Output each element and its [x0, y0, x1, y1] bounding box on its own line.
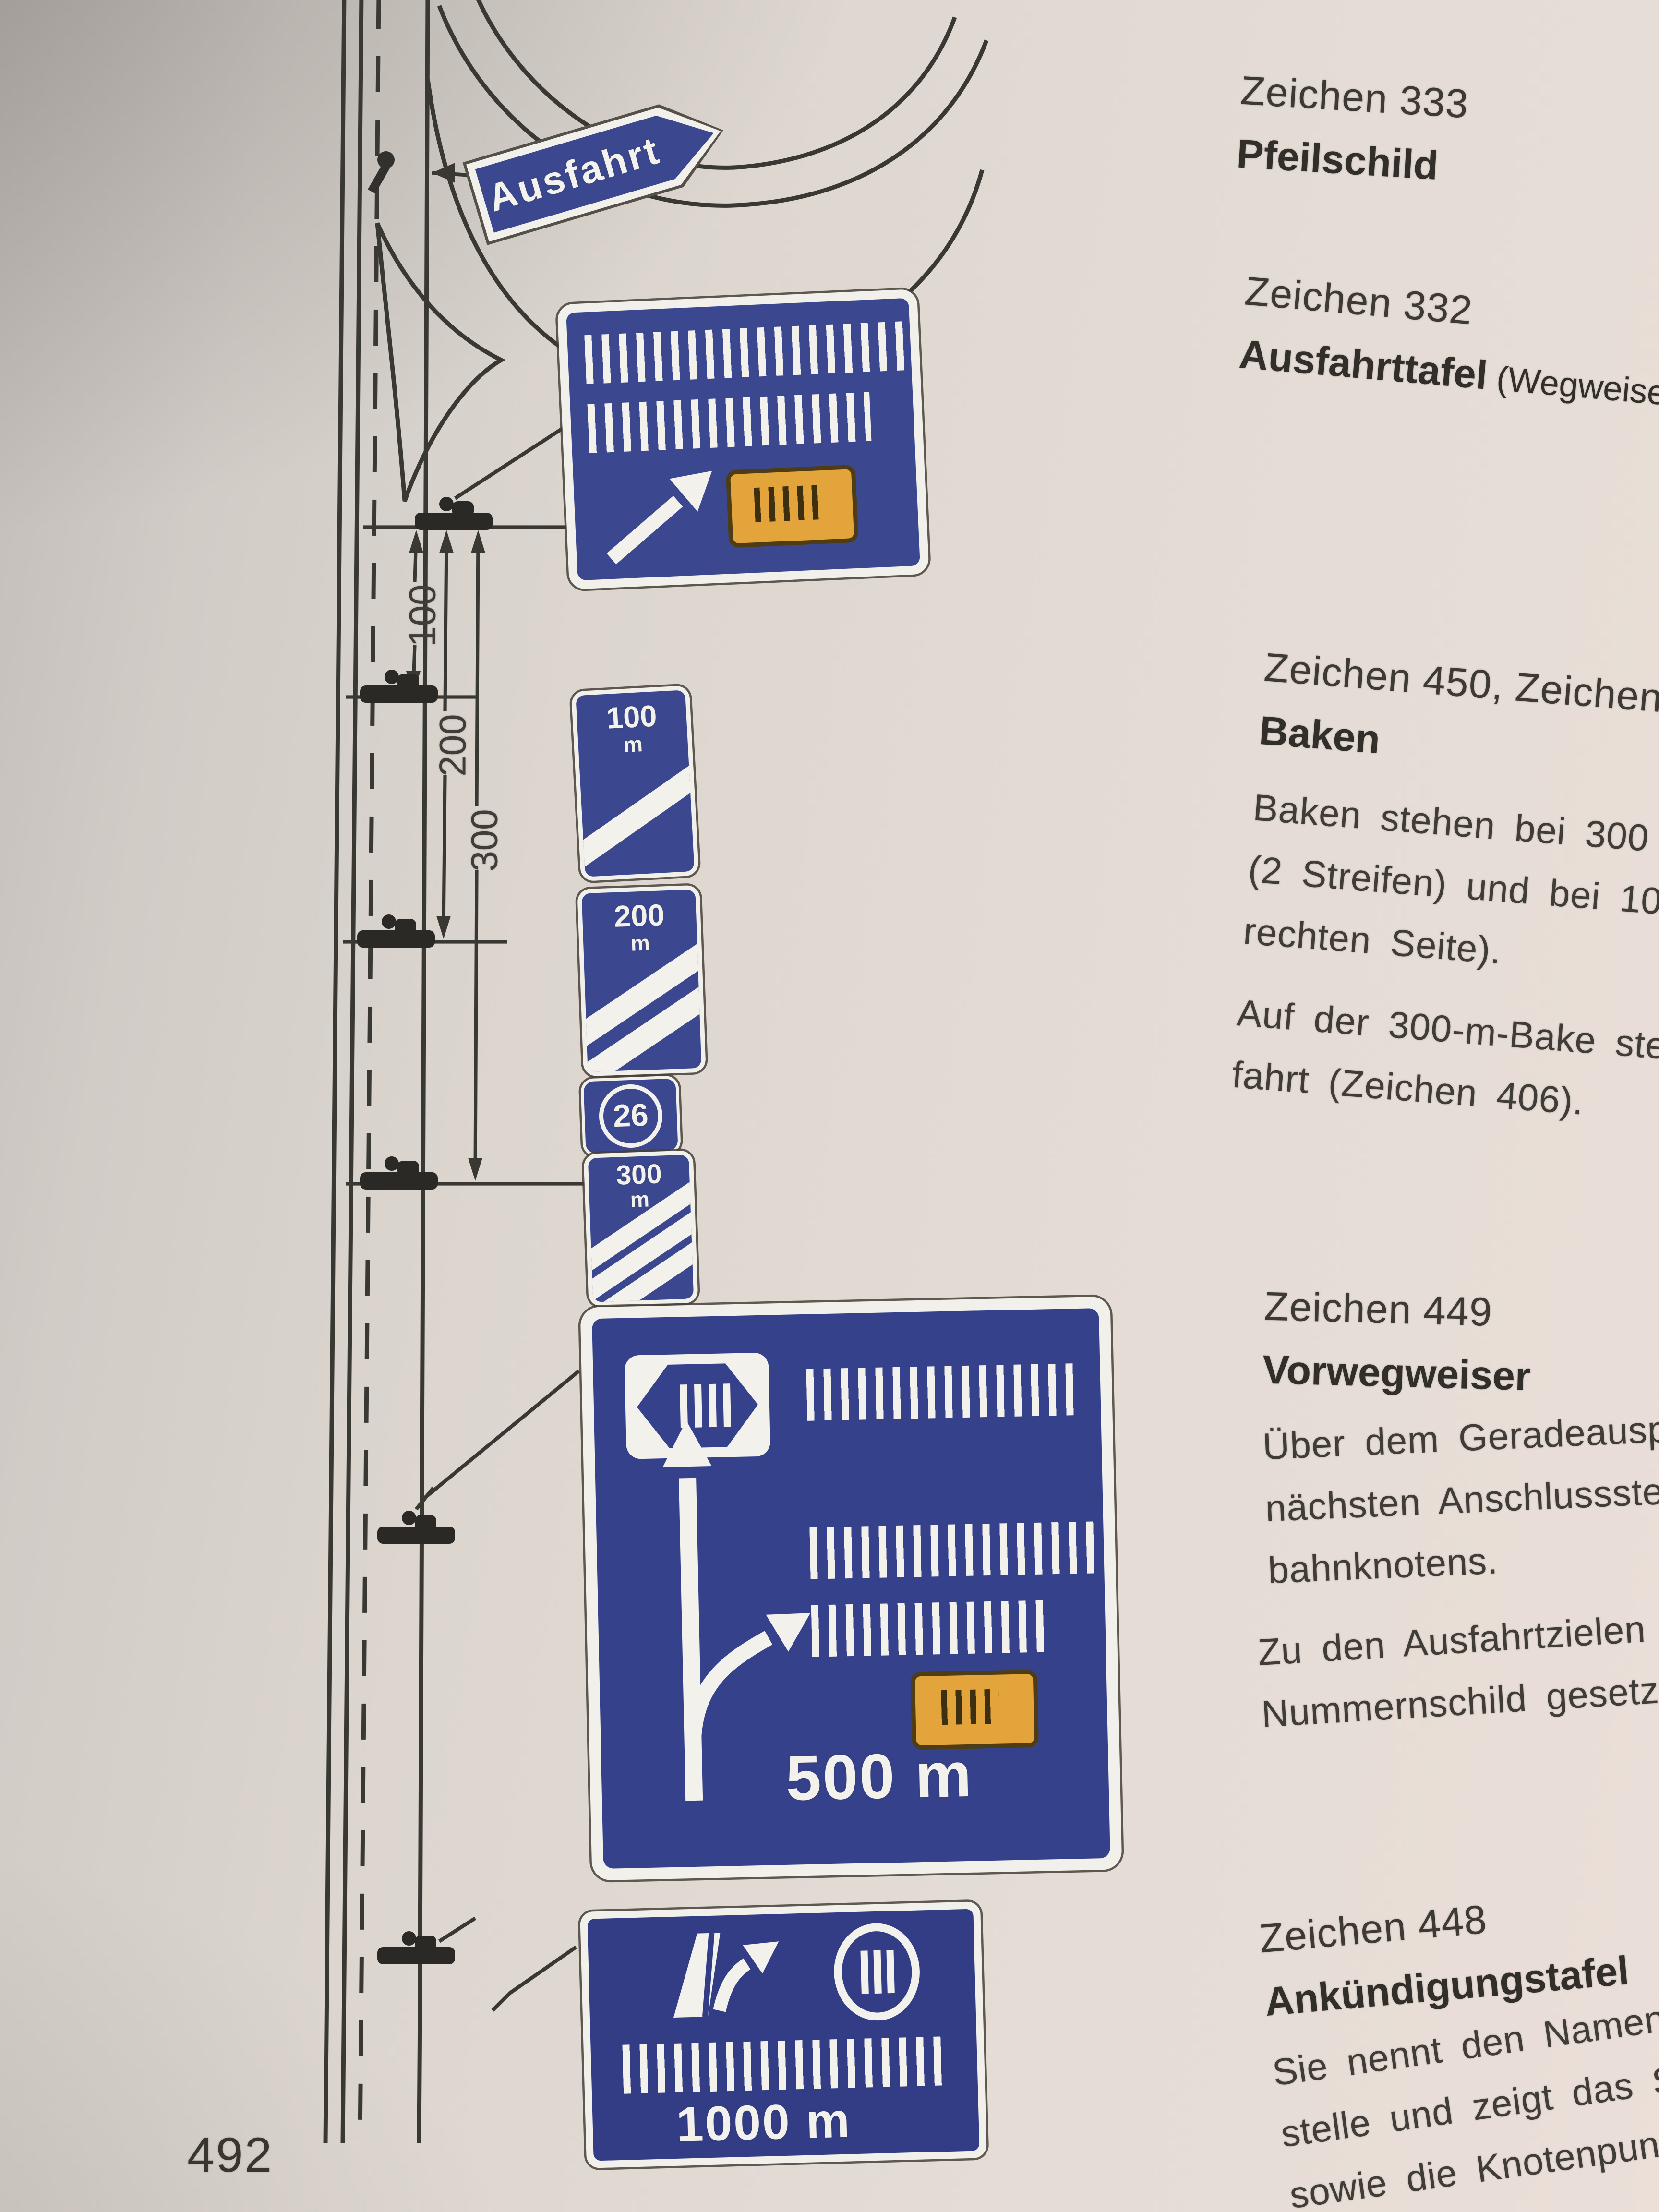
straight-arrow-stem — [687, 1478, 694, 1801]
road-right-edge — [419, 0, 428, 2143]
orange-badge-ticks — [754, 485, 824, 522]
bake-300m-face: 300m — [588, 1154, 694, 1302]
bake-stripe — [576, 757, 694, 877]
text-placeholder-ticks-row — [809, 1521, 1095, 1579]
bake-200m-label: 200m — [582, 890, 698, 958]
text-placeholder-ticks-row — [588, 392, 872, 453]
text-placeholder-ticks-row — [806, 1363, 1075, 1421]
book-page-photo: 100 200 300 Ausfahrt 100m 200m — [0, 0, 1659, 2212]
bake-100m-label: 100m — [576, 690, 688, 760]
zeichen-number: Zeichen 449 — [1263, 1284, 1659, 1343]
paragraph: Über dem Geradeauspfeil nächsten Anschlu… — [1262, 1395, 1659, 1602]
oval-number-badge-icon — [837, 1926, 917, 2018]
ausfahrttafel-sign — [557, 289, 929, 589]
bake-200m-face: 200m — [582, 890, 702, 1072]
text-placeholder-ticks-row — [622, 2036, 943, 2093]
route-number-badge: 26 — [583, 1079, 678, 1154]
orange-local-sign-badge — [726, 465, 859, 548]
vorwegweiser-leader-foot — [416, 1488, 433, 1509]
gore-island — [377, 223, 501, 501]
ankuendigung-leader-short — [439, 1918, 475, 1941]
text-block-zeichen-449: Zeichen 449 Vorwegweiser Über dem Gerade… — [1253, 1284, 1659, 1759]
vorwegweiser-panel: 500 m — [592, 1308, 1110, 1869]
bake-100m-face: 100m — [576, 690, 694, 877]
ausfahrttafel-panel — [566, 298, 920, 581]
distance-label-500m: 500 m — [785, 1740, 974, 1816]
distance-label-1000m: 1000 m — [675, 2093, 852, 2154]
bake-100m-sign: 100m — [571, 685, 699, 881]
vorwegweiser-sign: 500 m — [580, 1297, 1122, 1881]
paragraph: Baken stehen bei 300 m (3 (2 Streifen) u… — [1241, 777, 1659, 1004]
text-placeholder-ticks-row — [584, 321, 906, 384]
bake-300m-sign: 300m — [584, 1150, 698, 1307]
vorwegweiser-leader — [425, 1371, 579, 1498]
text-placeholder-ticks-row — [811, 1600, 1046, 1657]
gore-post-symbol — [372, 151, 395, 192]
branch-arrow-curve — [691, 1638, 771, 1752]
ankuendigungstafel-panel: 1000 m — [588, 1909, 980, 2161]
orange-local-sign-badge — [911, 1670, 1039, 1750]
road-left-edge-inner — [343, 0, 361, 2143]
road-left-edge-outer — [325, 0, 344, 2143]
ausfahrttafel-leader — [455, 423, 570, 498]
sign-title: Vorwegweiser — [1262, 1347, 1659, 1407]
road-lane-dashes — [360, 0, 379, 2143]
dimension-label-100: 100 — [401, 584, 445, 647]
orange-badge-ticks — [941, 1689, 999, 1725]
text-block-zeichen-448: Zeichen 448 Ankündigungstafel Sie nennt … — [1258, 1875, 1659, 2212]
dimension-label-300: 300 — [463, 809, 507, 871]
text-block-zeichen-333: Zeichen 333 Pfeilschild — [1235, 68, 1470, 192]
ankuendigungstafel-sign: 1000 m — [580, 1901, 987, 2168]
dimension-label-200: 200 — [431, 714, 476, 776]
page-number: 492 — [187, 2128, 273, 2185]
paragraph: Zu den Ausfahrtzielen kann Nummernschild… — [1256, 1592, 1659, 1746]
route-number-circle: 26 — [598, 1083, 664, 1149]
motorway-exit-pictogram — [671, 1927, 790, 2018]
text-block-zeichen-450: Zeichen 450, Zeichen 451, Z Baken Baken … — [1230, 645, 1659, 1148]
ankuendigung-leader-hook — [493, 1947, 576, 2010]
exit-arrow-icon — [593, 458, 742, 577]
bake-200m-sign: 200m — [577, 885, 706, 1077]
